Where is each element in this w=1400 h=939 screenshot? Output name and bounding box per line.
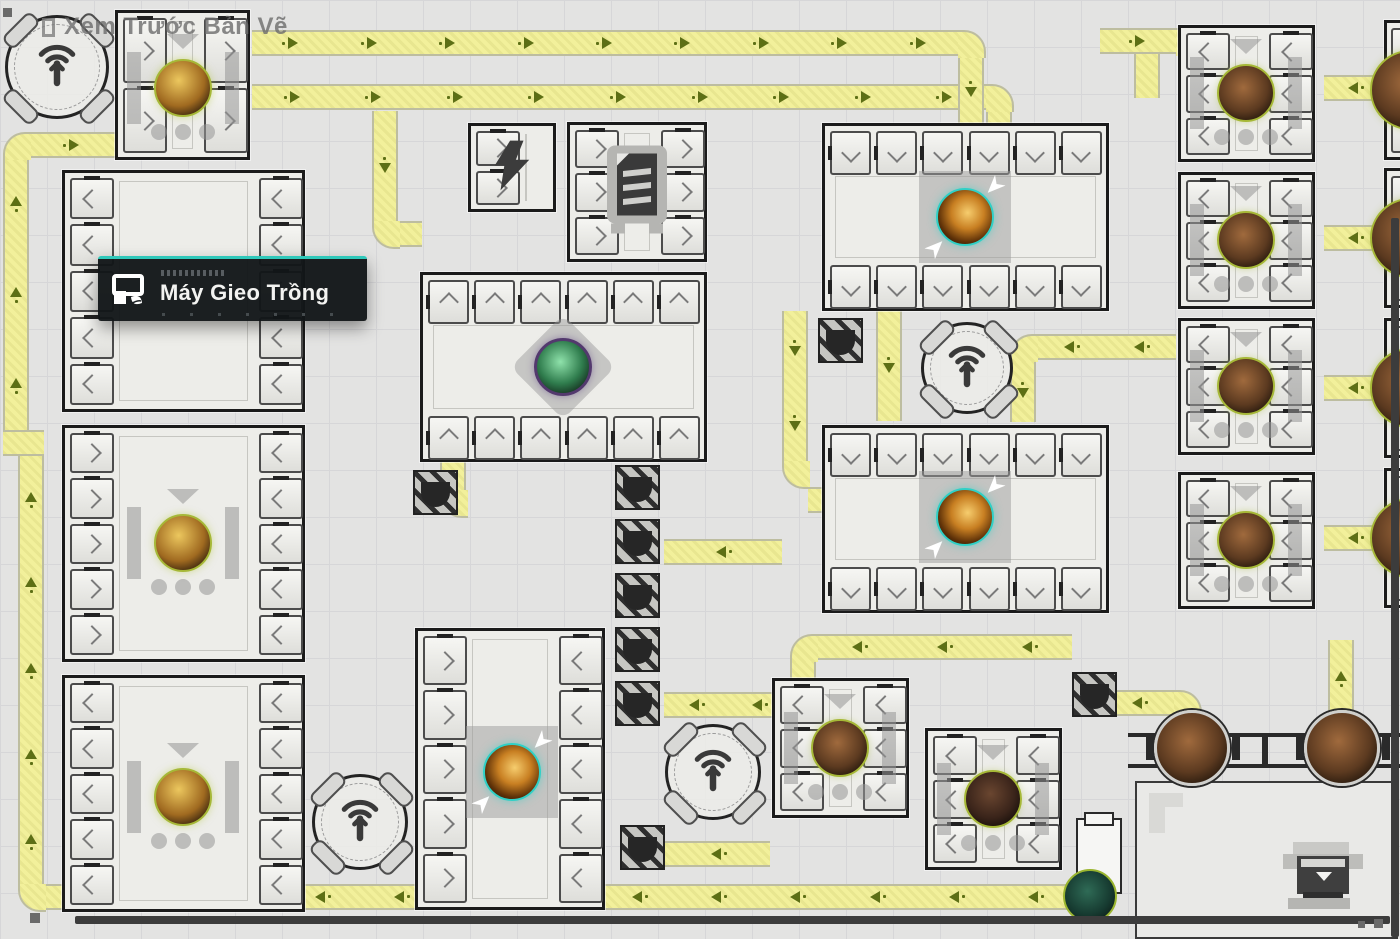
- slot-cap: [1200, 178, 1216, 182]
- rail-bracket: [1296, 736, 1304, 760]
- belt-arrow-tri: [290, 91, 300, 103]
- conveyor-belt[interactable]: [252, 84, 986, 110]
- belt-arrow: [790, 415, 800, 433]
- machine-slot[interactable]: [423, 690, 467, 739]
- machine-slot[interactable]: [259, 524, 303, 564]
- planter-side-bar: [127, 507, 141, 579]
- belt-arrow-dot: [910, 42, 913, 45]
- machine-slot[interactable]: [969, 131, 1010, 175]
- slot-cap: [675, 171, 691, 175]
- slot-cap: [84, 613, 100, 617]
- slot-cap: [828, 280, 832, 294]
- tooltip-microtext: [161, 270, 225, 276]
- belt-arrow-dot: [30, 590, 33, 593]
- slot-cap: [273, 817, 289, 821]
- planter-dot-shape: [1238, 129, 1254, 145]
- planter-dot-shape: [199, 833, 215, 849]
- belt-arrow-tri: [453, 91, 463, 103]
- conveyor-lift[interactable]: [818, 318, 863, 363]
- vertical-scrollbar[interactable]: [1391, 218, 1399, 937]
- conveyor-belt[interactable]: [1036, 334, 1176, 360]
- slot-chevron-icon: [933, 277, 953, 297]
- conveyor-belt[interactable]: [1134, 54, 1160, 98]
- lift-tunnel-icon: [623, 487, 652, 502]
- slot-cap: [472, 295, 476, 309]
- conveyor-lift[interactable]: [615, 681, 660, 726]
- belt-arrow: [1132, 342, 1150, 352]
- conveyor-corner[interactable]: [790, 634, 818, 662]
- lift-tunnel-icon: [628, 847, 657, 862]
- slot-cap: [84, 362, 100, 366]
- conveyor-belt[interactable]: [782, 311, 808, 461]
- slot-chevron-icon: [673, 139, 693, 159]
- belt-arrow-dot: [1361, 237, 1364, 240]
- slot-cap: [967, 280, 971, 294]
- conveyor-corner[interactable]: [782, 461, 810, 489]
- conveyor-lift[interactable]: [620, 825, 665, 870]
- machine-slot[interactable]: [567, 416, 608, 460]
- slot-cap: [273, 476, 289, 480]
- resource-item-amber[interactable]: [936, 488, 994, 546]
- machine-slot[interactable]: [70, 433, 114, 473]
- conveyor-belt[interactable]: [1100, 28, 1176, 54]
- belt-arrow-tri: [861, 91, 871, 103]
- slot-chevron-icon: [979, 579, 999, 599]
- slot-cap: [611, 431, 615, 445]
- conveyor-belt[interactable]: [372, 111, 398, 221]
- machine-slot[interactable]: [70, 478, 114, 518]
- belt-arrow: [692, 92, 710, 102]
- resource-item-rock[interactable]: [1217, 64, 1275, 122]
- machine-slot[interactable]: [559, 854, 603, 903]
- printer-part: [1301, 859, 1345, 867]
- machine-slot[interactable]: [922, 567, 963, 611]
- conveyor-lift[interactable]: [615, 573, 660, 618]
- machine-slot[interactable]: [259, 819, 303, 859]
- belt-arrow-dot: [1361, 87, 1364, 90]
- machine-slot[interactable]: [259, 615, 303, 655]
- machine-slot[interactable]: [70, 364, 114, 405]
- rail-bracket: [1382, 736, 1390, 760]
- machine-slot[interactable]: [830, 433, 871, 477]
- resource-item-rock2[interactable]: [964, 770, 1022, 828]
- slot-cap: [437, 688, 453, 692]
- conveyor-lift[interactable]: [615, 519, 660, 564]
- machine-slot[interactable]: [922, 265, 963, 309]
- machine-tooltip: Máy Gieo Trồng: [98, 256, 367, 321]
- slot-cap: [657, 431, 661, 445]
- machine-slot[interactable]: [559, 690, 603, 739]
- belt-arrow-tri: [779, 91, 789, 103]
- slot-cap: [877, 684, 893, 688]
- conveyor-lift[interactable]: [1072, 672, 1117, 717]
- slot-cap: [573, 634, 589, 638]
- machine-slot[interactable]: [559, 745, 603, 794]
- machine-slot[interactable]: [70, 524, 114, 564]
- planter-side-bar: [1288, 504, 1302, 576]
- belt-arrow-dot: [794, 340, 797, 343]
- machine-slot[interactable]: [830, 265, 871, 309]
- belt-arrow-tri: [965, 87, 977, 97]
- belt-arrow-tri: [852, 641, 862, 653]
- belt-arrow-tri: [367, 37, 377, 49]
- signal-antenna[interactable]: [921, 322, 1013, 414]
- machine-slot[interactable]: [613, 416, 654, 460]
- conveyor-belt[interactable]: [252, 30, 958, 56]
- machine-slot[interactable]: [70, 819, 114, 859]
- belt-arrow-dot: [674, 42, 677, 45]
- slot-cap: [84, 817, 100, 821]
- belt-arrow: [910, 38, 928, 48]
- slot-chevron-icon: [82, 328, 102, 348]
- belt-arrow: [947, 892, 965, 902]
- slot-chevron-icon: [439, 428, 459, 448]
- resource-item-amber[interactable]: [483, 743, 541, 801]
- belt-arrow-tri: [1135, 35, 1145, 47]
- machine-slot[interactable]: [259, 364, 303, 405]
- conveyor-corner[interactable]: [958, 30, 986, 58]
- resource-item-rock[interactable]: [1154, 710, 1230, 786]
- resource-item-teal[interactable]: [1063, 869, 1117, 923]
- machine-slot[interactable]: [876, 567, 917, 611]
- slot-cap: [273, 567, 289, 571]
- machine-slot[interactable]: [70, 569, 114, 609]
- conveyor-lift[interactable]: [615, 465, 660, 510]
- planter-funnel-shape: [1230, 332, 1262, 347]
- slot-chevron-icon: [571, 760, 591, 780]
- belt-arrow-tri: [789, 421, 801, 431]
- machine-slot[interactable]: [259, 683, 303, 723]
- belt-arrow: [935, 642, 953, 652]
- slot-cap: [675, 215, 691, 219]
- belt-arrow-dot: [724, 853, 727, 856]
- slot-cap: [573, 688, 589, 692]
- machine-slot[interactable]: [423, 799, 467, 848]
- belt-arrow-tri: [394, 891, 404, 903]
- planter-dot-shape: [832, 784, 848, 800]
- slot-cap: [573, 743, 589, 747]
- slot-cap: [828, 146, 832, 160]
- machine-power-node[interactable]: [468, 123, 556, 212]
- slot-cap: [273, 431, 289, 435]
- machine-slot[interactable]: [559, 636, 603, 685]
- horizontal-scrollbar[interactable]: [75, 916, 1390, 924]
- planter-dot-shape: [1262, 576, 1278, 592]
- slot-chevron-icon: [82, 829, 102, 849]
- slot-cap: [920, 448, 924, 462]
- belt-arrow-dot: [765, 704, 768, 707]
- machine-slot[interactable]: [423, 854, 467, 903]
- slot-cap: [490, 129, 506, 133]
- conveyor-lift[interactable]: [413, 470, 458, 515]
- planter-side-bar: [225, 761, 239, 833]
- belt-arrow: [26, 661, 36, 679]
- machine-slot[interactable]: [1061, 433, 1102, 477]
- slot-chevron-icon: [841, 143, 861, 163]
- belt-arrow-dot: [528, 96, 531, 99]
- slot-cap: [1013, 582, 1017, 596]
- slot-chevron-icon: [673, 183, 693, 203]
- slot-cap: [84, 726, 100, 730]
- slot-chevron-icon: [887, 143, 907, 163]
- planter-funnel-shape: [1230, 39, 1262, 54]
- belt-arrow: [1062, 342, 1080, 352]
- belt-arrow-dot: [282, 42, 285, 45]
- conveyor-corner[interactable]: [3, 132, 31, 160]
- belt-arrow-tri: [716, 546, 726, 558]
- planter-funnel-shape: [1230, 186, 1262, 201]
- machine-slot[interactable]: [922, 131, 963, 175]
- slot-cap: [273, 222, 289, 226]
- belt-arrow-dot: [1361, 387, 1364, 390]
- machine-slot[interactable]: [659, 416, 700, 460]
- conveyor-belt[interactable]: [665, 841, 770, 867]
- conveyor-belt[interactable]: [398, 221, 422, 247]
- planter-dot-shape: [808, 784, 824, 800]
- resource-item-rock[interactable]: [811, 719, 869, 777]
- machine-slot[interactable]: [70, 178, 114, 219]
- machine-slot[interactable]: [1061, 131, 1102, 175]
- slot-cap: [1283, 31, 1299, 35]
- planter-funnel-shape: [824, 694, 856, 709]
- belt-arrow-dot: [365, 96, 368, 99]
- machine-slot[interactable]: [70, 774, 114, 814]
- lift-tunnel-icon: [623, 703, 652, 718]
- machine-slot[interactable]: [830, 131, 871, 175]
- machine-slot[interactable]: [474, 416, 515, 460]
- slot-chevron-icon: [933, 143, 953, 163]
- belt-arrow: [1130, 698, 1148, 708]
- machine-slot[interactable]: [70, 317, 114, 358]
- slot-chevron-icon: [670, 292, 690, 312]
- conveyor-belt[interactable]: [664, 539, 782, 565]
- machine-furnace[interactable]: [567, 122, 707, 262]
- machine-slot[interactable]: [70, 865, 114, 905]
- machine-slot[interactable]: [70, 728, 114, 768]
- pedestal-cap: [1084, 812, 1114, 826]
- machine-slot[interactable]: [1015, 433, 1056, 477]
- machine-slot[interactable]: [1015, 265, 1056, 309]
- belt-arrow-tri: [69, 139, 79, 151]
- rail-connector: [1262, 733, 1268, 766]
- belt-arrow-dot: [30, 676, 33, 679]
- slot-chevron-icon: [571, 868, 591, 888]
- machine-slot[interactable]: [1061, 265, 1102, 309]
- belt-arrow: [630, 892, 648, 902]
- belt-arrow-dot: [30, 762, 33, 765]
- slot-cap: [611, 295, 615, 309]
- slot-chevron-icon: [82, 189, 102, 209]
- slot-cap: [273, 681, 289, 685]
- planter-dot-shape: [175, 124, 191, 140]
- planter-side-bar: [784, 712, 798, 784]
- lift-tunnel-icon: [1080, 694, 1109, 709]
- slot-chevron-icon: [82, 579, 102, 599]
- slot-chevron-icon: [577, 428, 597, 448]
- belt-arrow: [1026, 892, 1044, 902]
- planter-dot-shape: [1214, 276, 1230, 292]
- belt-arrow: [1346, 383, 1364, 393]
- belt-arrow: [1336, 669, 1346, 687]
- conveyor-corner[interactable]: [18, 884, 46, 912]
- machine-slot[interactable]: [259, 569, 303, 609]
- belt-arrow-dot: [30, 847, 33, 850]
- resource-item-rock[interactable]: [1217, 511, 1275, 569]
- belt-arrow-dot: [407, 896, 410, 899]
- slot-chevron-icon: [571, 814, 591, 834]
- resource-item-rock[interactable]: [1217, 211, 1275, 269]
- signal-antenna[interactable]: [312, 774, 408, 870]
- machine-slot[interactable]: [520, 280, 561, 324]
- slot-chevron-icon: [271, 739, 291, 759]
- machine-slot[interactable]: [259, 478, 303, 518]
- belt-arrow-dot: [803, 896, 806, 899]
- machine-slot[interactable]: [259, 865, 303, 905]
- slot-chevron-icon: [841, 579, 861, 599]
- conveyor-corner[interactable]: [986, 84, 1014, 112]
- machine-slot[interactable]: [1061, 567, 1102, 611]
- slot-cap: [573, 852, 589, 856]
- slot-chevron-icon: [82, 443, 102, 463]
- machine-slot[interactable]: [830, 567, 871, 611]
- lift-tunnel-icon: [421, 492, 450, 507]
- blueprint-canvas[interactable]: [0, 0, 1400, 939]
- belt-arrow-dot: [596, 42, 599, 45]
- belt-arrow-dot: [284, 96, 287, 99]
- belt-arrow-dot: [1022, 382, 1025, 385]
- machine-slot[interactable]: [613, 280, 654, 324]
- planter-funnel-shape: [167, 489, 199, 504]
- machine-slot[interactable]: [876, 433, 917, 477]
- slot-cap: [1283, 478, 1299, 482]
- conveyor-belt[interactable]: [958, 56, 984, 123]
- belt-arrow: [63, 140, 81, 150]
- machine-slot[interactable]: [259, 317, 303, 358]
- machine-slot[interactable]: [428, 280, 469, 324]
- bolt-icon: [489, 137, 535, 198]
- slot-chevron-icon: [271, 625, 291, 645]
- planter-dot-shape: [1238, 576, 1254, 592]
- belt-arrow: [936, 92, 954, 102]
- slot-chevron-icon: [577, 292, 597, 312]
- printer-part: [1288, 898, 1350, 909]
- corner-dot: [3, 8, 12, 17]
- machine-slot[interactable]: [969, 265, 1010, 309]
- corner-dot: [1358, 921, 1365, 928]
- resource-item-gold[interactable]: [154, 514, 212, 572]
- conveyor-belt[interactable]: [876, 311, 902, 421]
- belt-arrow: [709, 892, 727, 902]
- machine-slot[interactable]: [70, 683, 114, 723]
- machine-slot[interactable]: [876, 265, 917, 309]
- machine-slot[interactable]: [259, 178, 303, 219]
- slot-cap: [437, 852, 453, 856]
- machine-slot[interactable]: [423, 745, 467, 794]
- planter-dot-shape: [175, 579, 191, 595]
- belt-arrow-dot: [645, 896, 648, 899]
- slot-cap: [675, 128, 691, 132]
- slot-chevron-icon: [933, 445, 953, 465]
- resource-item-rock[interactable]: [1217, 357, 1275, 415]
- machine-slot[interactable]: [567, 280, 608, 324]
- belt-arrow-dot: [15, 300, 18, 303]
- belt-arrow-dot: [724, 896, 727, 899]
- slot-cap: [1200, 324, 1216, 328]
- machine-slot[interactable]: [423, 636, 467, 685]
- belt-arrow-tri: [759, 37, 769, 49]
- conveyor-belt[interactable]: [816, 634, 1072, 660]
- slot-chevron-icon: [439, 292, 459, 312]
- slot-cap: [273, 863, 289, 867]
- machine-slot[interactable]: [428, 416, 469, 460]
- printer-icon[interactable]: [1283, 842, 1363, 908]
- slot-cap: [967, 448, 971, 462]
- resource-item-rock[interactable]: [1370, 50, 1400, 130]
- belt-arrow-tri: [916, 37, 926, 49]
- resource-item-gold[interactable]: [154, 59, 212, 117]
- slot-chevron-icon: [875, 782, 895, 802]
- conveyor-belt[interactable]: [3, 158, 29, 430]
- machine-slot[interactable]: [259, 433, 303, 473]
- resource-item-green[interactable]: [534, 338, 592, 396]
- conveyor-corner[interactable]: [372, 221, 400, 249]
- signal-antenna-icon: [688, 745, 738, 800]
- planter-dot-shape: [151, 833, 167, 849]
- resource-item-gold[interactable]: [154, 768, 212, 826]
- slot-chevron-icon: [887, 445, 907, 465]
- belt-arrow: [26, 575, 36, 593]
- slot-chevron-icon: [435, 705, 455, 725]
- slot-cap: [84, 476, 100, 480]
- machine-slot[interactable]: [70, 615, 114, 655]
- slot-chevron-icon: [82, 374, 102, 394]
- planter-dot-shape: [1009, 835, 1025, 851]
- machine-slot[interactable]: [969, 567, 1010, 611]
- resource-item-rock[interactable]: [1304, 710, 1380, 786]
- belt-arrow: [855, 92, 873, 102]
- machine-slot[interactable]: [559, 799, 603, 848]
- machine-slot[interactable]: [259, 728, 303, 768]
- signal-antenna-icon: [335, 795, 385, 850]
- conveyor-belt[interactable]: [18, 456, 44, 884]
- machine-slot[interactable]: [1015, 131, 1056, 175]
- signal-antenna[interactable]: [665, 724, 761, 820]
- belt-arrow: [439, 38, 457, 48]
- slot-chevron-icon: [271, 374, 291, 394]
- machine-slot[interactable]: [474, 280, 515, 324]
- machine-slot[interactable]: [1015, 567, 1056, 611]
- corner-dot: [30, 913, 40, 923]
- resource-item-amber[interactable]: [936, 188, 994, 246]
- belt-arrow-dot: [384, 157, 387, 160]
- conveyor-belt[interactable]: [1328, 640, 1354, 716]
- slot-cap: [565, 431, 569, 445]
- machine-slot[interactable]: [659, 280, 700, 324]
- belt-arrow-tri: [752, 699, 762, 711]
- slot-cap: [967, 146, 971, 160]
- machine-slot[interactable]: [520, 416, 561, 460]
- lift-tunnel-icon: [623, 649, 652, 664]
- machine-slot[interactable]: [259, 774, 303, 814]
- conveyor-belt[interactable]: [3, 430, 44, 456]
- slot-cap: [1030, 734, 1046, 738]
- slot-cap: [84, 863, 100, 867]
- belt-arrow: [447, 92, 465, 102]
- planter-funnel-shape: [1230, 486, 1262, 501]
- conveyor-lift[interactable]: [615, 627, 660, 672]
- conveyor-belt[interactable]: [29, 132, 115, 158]
- machine-slot[interactable]: [876, 131, 917, 175]
